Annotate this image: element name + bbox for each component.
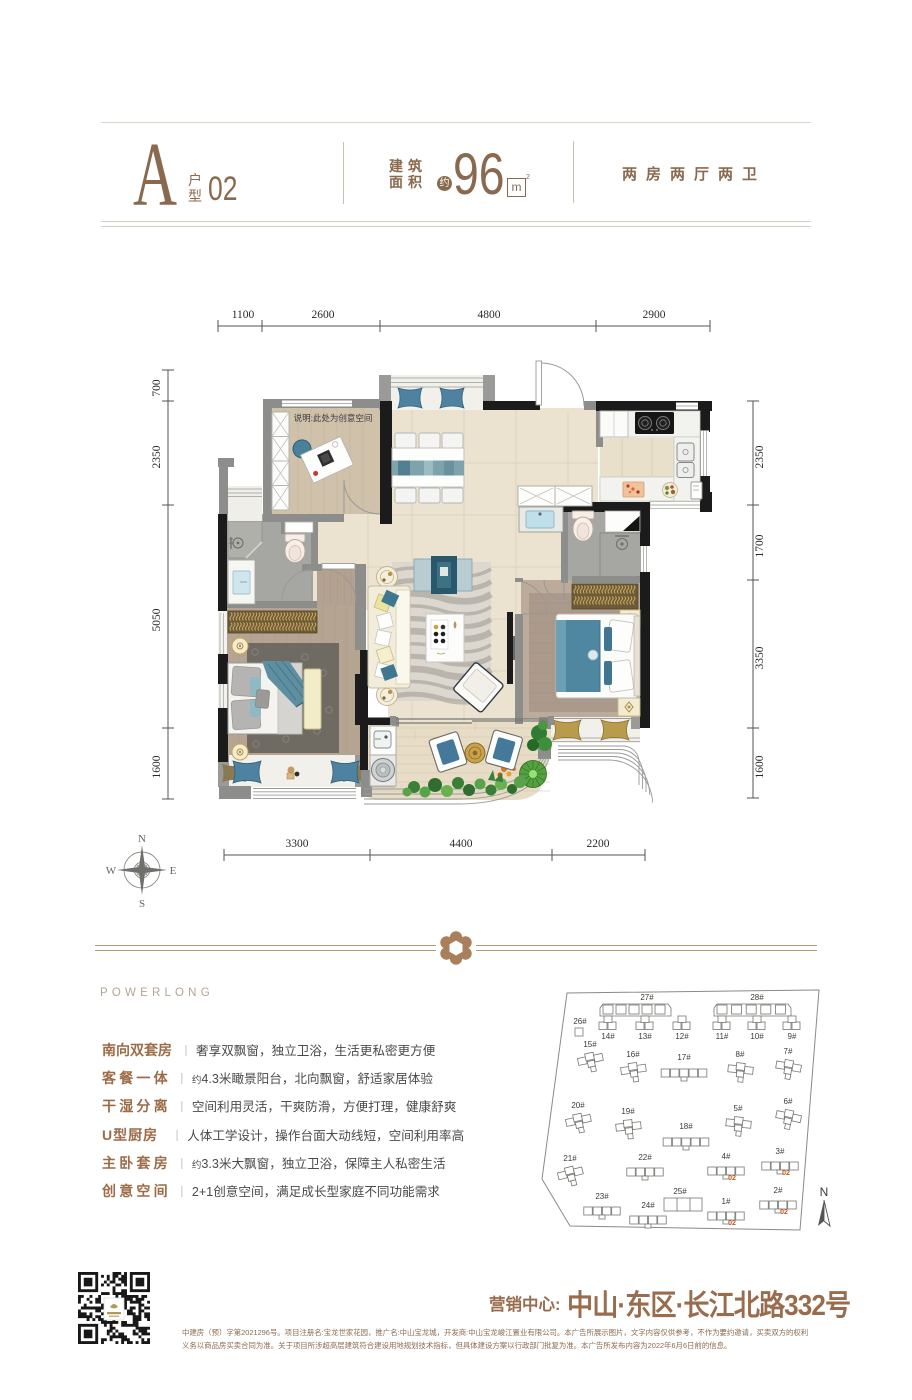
svg-text:14#: 14# [601,1032,615,1041]
svg-text:1700: 1700 [754,534,766,557]
svg-text:1100: 1100 [232,309,255,321]
svg-text:22#: 22# [638,1153,652,1162]
svg-text:18#: 18# [679,1122,693,1131]
svg-text:02: 02 [728,1175,736,1182]
svg-text:11#: 11# [716,1032,729,1041]
svg-text:E: E [170,865,177,877]
svg-text:4#: 4# [722,1152,731,1161]
svg-text:2350: 2350 [754,445,766,468]
svg-text:2600: 2600 [312,309,335,321]
svg-text:1#: 1# [722,1197,731,1206]
svg-text:3#: 3# [776,1147,785,1156]
svg-text:2350: 2350 [151,445,163,468]
svg-text:02: 02 [728,1220,736,1227]
svg-text:7#: 7# [784,1047,793,1056]
svg-text:12#: 12# [675,1032,689,1041]
svg-text:16#: 16# [626,1050,640,1059]
svg-text:13#: 13# [638,1032,652,1041]
svg-text:20#: 20# [571,1101,585,1110]
svg-text:6#: 6# [784,1097,793,1106]
svg-text:1600: 1600 [754,755,766,778]
svg-text:24#: 24# [641,1201,655,1210]
svg-text:说明:此处为创意空间: 说明:此处为创意空间 [294,413,373,423]
svg-text:9#: 9# [788,1032,797,1041]
svg-text:N: N [138,833,146,845]
svg-text:3300: 3300 [286,838,309,850]
svg-text:700: 700 [151,379,163,397]
svg-text:28#: 28# [750,993,764,1002]
svg-text:19#: 19# [621,1107,635,1116]
svg-text:W: W [106,865,117,877]
svg-text:8#: 8# [736,1050,745,1059]
svg-text:4800: 4800 [478,309,501,321]
svg-text:1600: 1600 [151,755,163,778]
svg-text:10#: 10# [750,1032,764,1041]
svg-text:02: 02 [782,1170,790,1177]
svg-text:27#: 27# [640,993,654,1002]
svg-text:5050: 5050 [151,608,163,631]
svg-text:3350: 3350 [754,646,766,669]
svg-text:17#: 17# [677,1053,691,1062]
svg-text:25#: 25# [673,1187,687,1196]
svg-text:26#: 26# [573,1017,587,1026]
svg-text:2#: 2# [774,1186,783,1195]
svg-text:2200: 2200 [587,838,610,850]
svg-text:2900: 2900 [643,309,666,321]
svg-text:S: S [139,898,145,910]
svg-text:23#: 23# [595,1192,609,1201]
svg-text:4400: 4400 [450,838,473,850]
svg-text:5#: 5# [734,1104,743,1113]
svg-text:15#: 15# [583,1040,597,1049]
svg-text:N: N [820,1185,829,1199]
svg-text:02: 02 [780,1209,788,1216]
svg-text:21#: 21# [563,1154,577,1163]
